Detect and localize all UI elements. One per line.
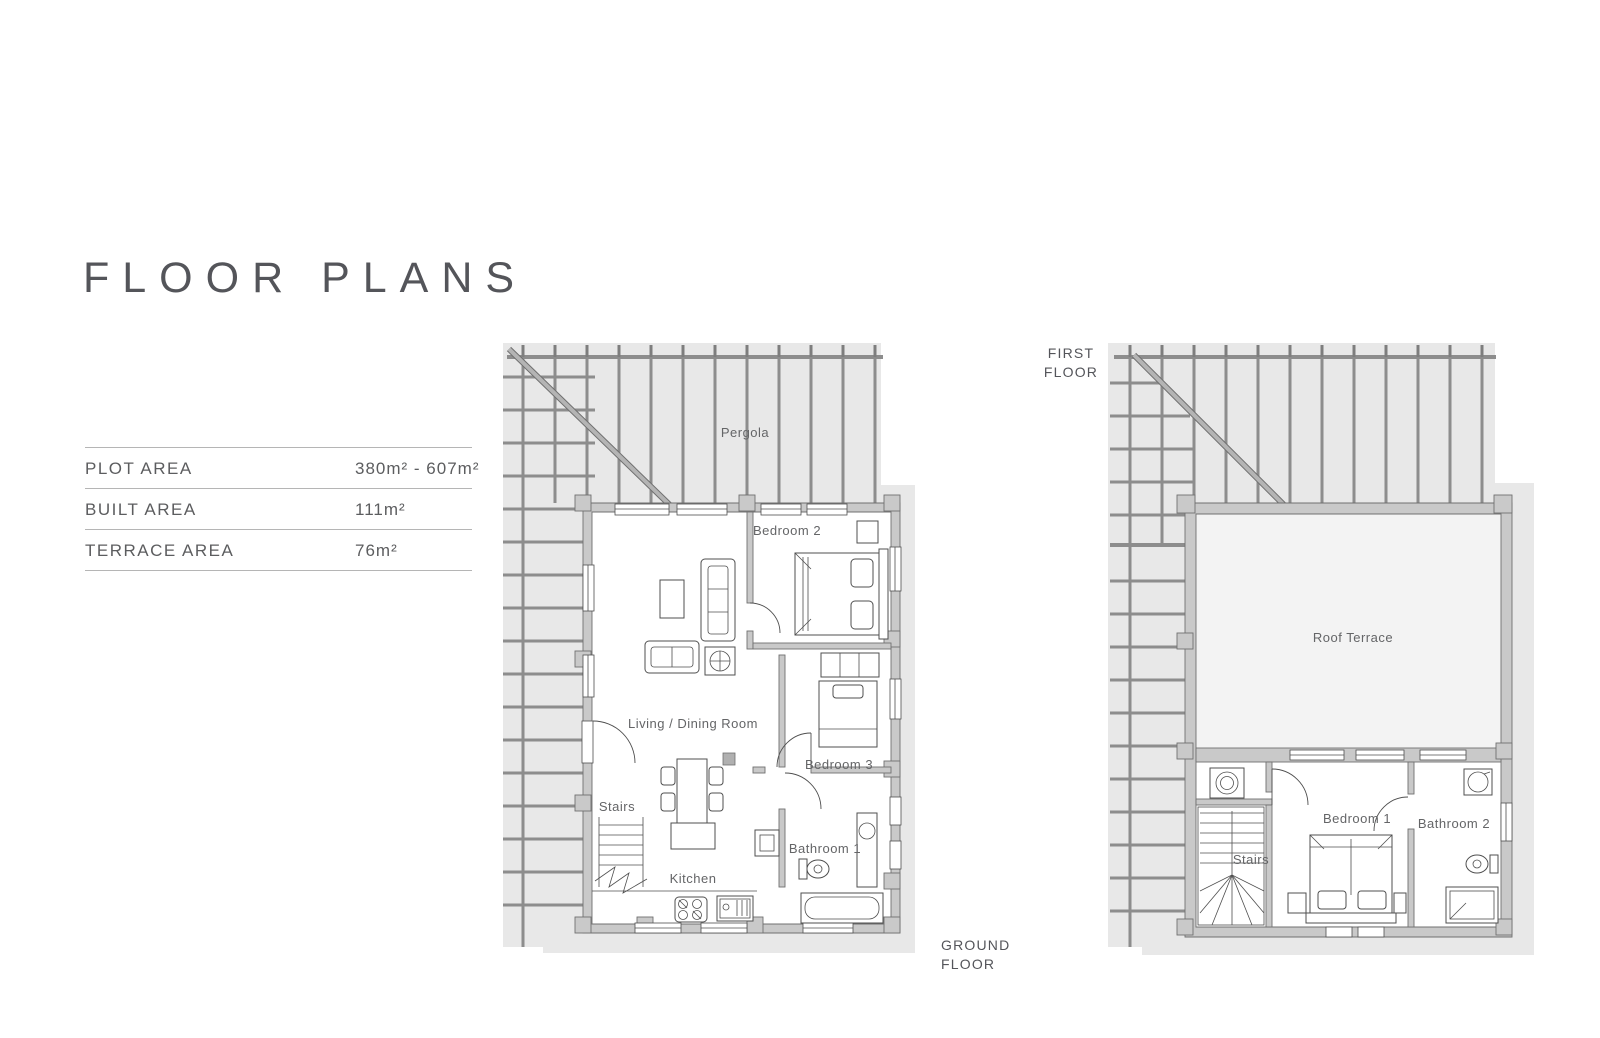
first-floor-plan: Roof Terrace Bedroom 1 Bathroom 2 Stairs bbox=[1040, 335, 1545, 970]
room-label-stairs: Stairs bbox=[1233, 852, 1269, 867]
bed-single bbox=[819, 681, 877, 747]
room-label-kitchen: Kitchen bbox=[670, 871, 717, 886]
toilet-icon bbox=[799, 859, 829, 879]
table-row: TERRACE AREA 76m² bbox=[85, 530, 472, 571]
table-row: PLOT AREA 380m² - 607m² bbox=[85, 448, 472, 489]
nightstand bbox=[857, 521, 878, 543]
row-label: TERRACE AREA bbox=[85, 541, 234, 561]
row-label: PLOT AREA bbox=[85, 459, 193, 479]
bed-double bbox=[795, 549, 888, 639]
toilet-icon bbox=[1466, 855, 1498, 873]
bathtub-icon bbox=[801, 893, 883, 923]
washbasin-icon bbox=[1464, 769, 1492, 795]
washing-machine-icon bbox=[1210, 768, 1244, 798]
bed-double bbox=[1306, 835, 1396, 923]
fridge-icon bbox=[755, 830, 779, 856]
nightstand bbox=[1288, 893, 1306, 913]
side-unit-icon bbox=[705, 647, 735, 675]
row-value: 111m² bbox=[355, 500, 406, 520]
stove-icon bbox=[675, 897, 707, 922]
room-label-bedroom2: Bedroom 2 bbox=[753, 523, 821, 538]
column-icon bbox=[723, 753, 735, 765]
area-table: PLOT AREA 380m² - 607m² BUILT AREA 111m²… bbox=[85, 447, 472, 571]
row-value: 76m² bbox=[355, 541, 398, 561]
house-first-floor: Roof Terrace Bedroom 1 Bathroom 2 Stairs bbox=[1177, 495, 1512, 937]
sink-icon bbox=[717, 896, 753, 921]
floor-plans-page: FLOOR PLANS PLOT AREA 380m² - 607m² BUIL… bbox=[0, 0, 1600, 1038]
room-label-bathroom2: Bathroom 2 bbox=[1418, 816, 1490, 831]
shower-tray bbox=[1446, 887, 1498, 923]
room-label-pergola: Pergola bbox=[721, 425, 770, 440]
coffee-table bbox=[660, 580, 684, 618]
ground-floor-caption: GROUND FLOOR bbox=[941, 936, 1033, 974]
room-label-bedroom3: Bedroom 3 bbox=[805, 757, 873, 772]
room-label-bathroom1: Bathroom 1 bbox=[789, 841, 861, 856]
room-label-living-dining: Living / Dining Room bbox=[628, 716, 758, 731]
table-row: BUILT AREA 111m² bbox=[85, 489, 472, 530]
row-label: BUILT AREA bbox=[85, 500, 197, 520]
room-label-roof-terrace: Roof Terrace bbox=[1313, 630, 1393, 645]
row-value: 380m² - 607m² bbox=[355, 459, 479, 479]
room-label-stairs: Stairs bbox=[599, 799, 635, 814]
wardrobe bbox=[821, 653, 879, 677]
ground-floor-plan: Pergola Bedroom 2 Living / Dining Room B… bbox=[495, 335, 915, 955]
nightstand bbox=[1394, 893, 1406, 913]
room-label-bedroom1: Bedroom 1 bbox=[1323, 811, 1391, 826]
page-title: FLOOR PLANS bbox=[83, 254, 527, 303]
